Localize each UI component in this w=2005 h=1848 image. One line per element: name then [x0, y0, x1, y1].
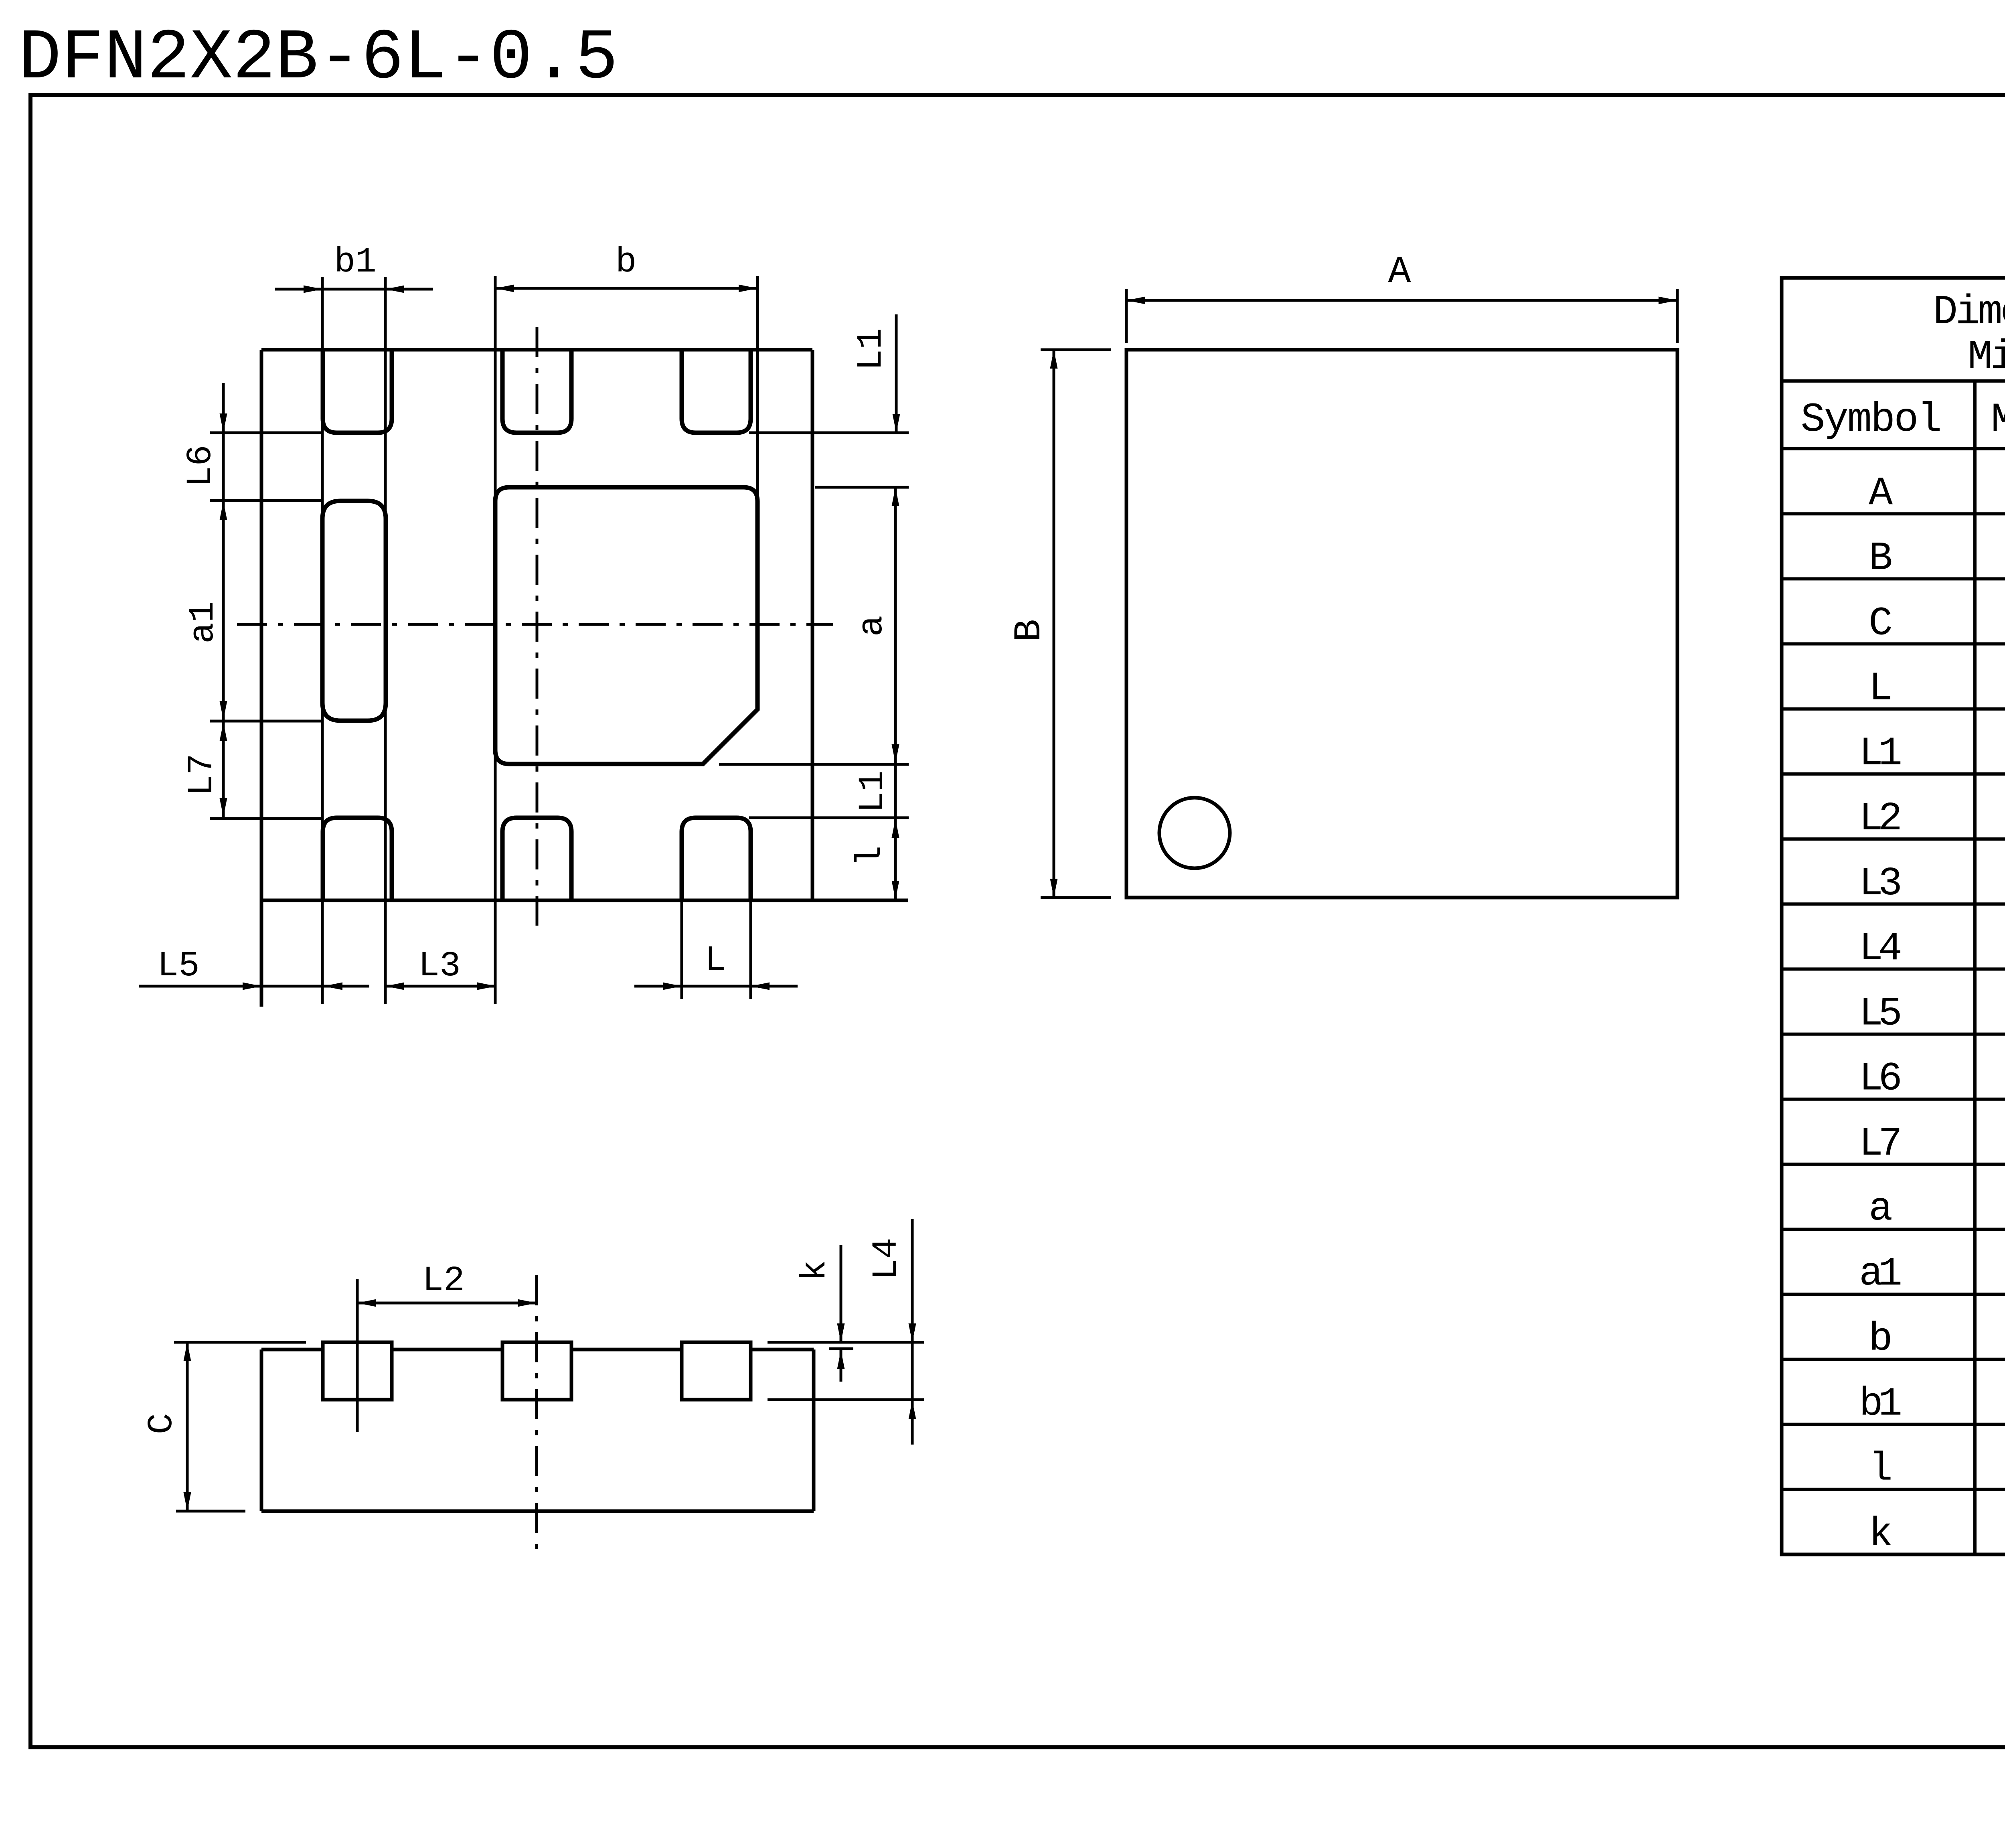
- svg-text:L3: L3: [1859, 861, 1900, 907]
- svg-text:C: C: [142, 1413, 182, 1435]
- svg-text:L: L: [1869, 667, 1890, 712]
- svg-text:C: C: [1869, 601, 1891, 646]
- svg-text:L2: L2: [1859, 796, 1900, 842]
- svg-text:A: A: [1388, 250, 1411, 294]
- svg-text:a: a: [853, 616, 892, 637]
- svg-text:L7: L7: [1859, 1122, 1900, 1167]
- svg-text:Millimeters: Millimeters: [1968, 334, 2005, 381]
- svg-text:l: l: [1869, 1447, 1891, 1492]
- svg-text:L: L: [705, 941, 726, 981]
- svg-text:b: b: [616, 243, 637, 282]
- svg-text:L2: L2: [422, 1261, 465, 1301]
- svg-text:k: k: [796, 1260, 835, 1281]
- svg-text:L3: L3: [418, 946, 461, 986]
- svg-text:MIN: MIN: [1991, 397, 2005, 443]
- svg-text:L6: L6: [1859, 1057, 1900, 1102]
- svg-text:Symbol: Symbol: [1800, 397, 1940, 443]
- svg-text:L5: L5: [157, 946, 200, 986]
- svg-text:L1: L1: [853, 770, 893, 813]
- svg-text:a1: a1: [184, 601, 223, 644]
- svg-text:L4: L4: [1859, 926, 1900, 972]
- svg-text:Dimensions In: Dimensions In: [1933, 289, 2005, 336]
- svg-text:L7: L7: [182, 754, 222, 796]
- svg-text:L1: L1: [852, 328, 891, 371]
- svg-text:b1: b1: [1859, 1382, 1901, 1427]
- svg-text:a1: a1: [1859, 1252, 1901, 1297]
- svg-text:k: k: [1869, 1512, 1891, 1557]
- svg-text:L1: L1: [1859, 731, 1901, 777]
- svg-text:B: B: [1008, 619, 1051, 642]
- svg-text:DFN2X2B-6L-0.5: DFN2X2B-6L-0.5: [18, 18, 618, 99]
- svg-text:b1: b1: [334, 243, 377, 282]
- svg-text:b: b: [1869, 1317, 1890, 1362]
- svg-text:l: l: [851, 846, 891, 867]
- svg-text:L4: L4: [867, 1238, 907, 1280]
- svg-text:L5: L5: [1859, 991, 1900, 1037]
- svg-text:L6: L6: [181, 445, 221, 487]
